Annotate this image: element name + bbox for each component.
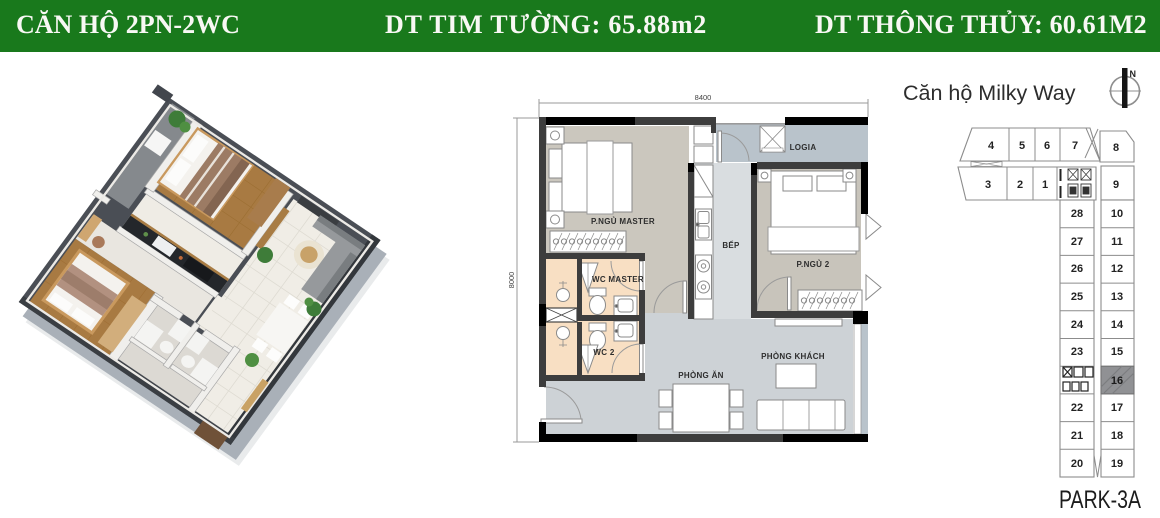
svg-text:24: 24: [1071, 319, 1084, 331]
svg-text:26: 26: [1071, 263, 1083, 275]
svg-text:WC 2: WC 2: [593, 348, 614, 357]
svg-text:27: 27: [1071, 236, 1083, 248]
svg-text:WC MASTER: WC MASTER: [592, 275, 644, 284]
svg-text:N: N: [1130, 69, 1137, 79]
svg-text:Căn hộ Milky Way: Căn hộ Milky Way: [903, 81, 1076, 105]
svg-text:1: 1: [1042, 179, 1048, 191]
svg-text:19: 19: [1111, 458, 1123, 470]
svg-text:9: 9: [1113, 179, 1119, 191]
svg-text:13: 13: [1111, 291, 1123, 303]
svg-text:18: 18: [1111, 430, 1123, 442]
svg-text:25: 25: [1071, 291, 1083, 303]
svg-text:22: 22: [1071, 402, 1083, 414]
svg-text:5: 5: [1019, 140, 1025, 152]
svg-text:PARK-3A: PARK-3A: [1059, 486, 1141, 514]
svg-text:6: 6: [1044, 140, 1050, 152]
svg-text:PHÒNG KHÁCH: PHÒNG KHÁCH: [761, 352, 825, 361]
svg-text:14: 14: [1111, 319, 1124, 331]
svg-text:28: 28: [1071, 208, 1083, 220]
svg-text:3: 3: [985, 179, 991, 191]
svg-text:17: 17: [1111, 402, 1123, 414]
svg-text:4: 4: [988, 140, 995, 152]
svg-text:12: 12: [1111, 263, 1123, 275]
svg-text:P.NGỦ MASTER: P.NGỦ MASTER: [591, 217, 655, 226]
svg-text:16: 16: [1111, 375, 1123, 387]
svg-text:BẾP: BẾP: [722, 240, 740, 250]
svg-text:20: 20: [1071, 458, 1083, 470]
svg-text:21: 21: [1071, 430, 1083, 442]
svg-text:8000: 8000: [507, 272, 516, 289]
svg-text:7: 7: [1072, 140, 1078, 152]
svg-text:15: 15: [1111, 346, 1123, 358]
svg-text:P.NGỦ 2: P.NGỦ 2: [796, 260, 829, 269]
svg-text:23: 23: [1071, 346, 1083, 358]
svg-text:PHÒNG ĂN: PHÒNG ĂN: [678, 371, 724, 380]
svg-text:8: 8: [1113, 142, 1119, 154]
svg-text:LOGIA: LOGIA: [790, 143, 817, 152]
svg-text:8400: 8400: [695, 93, 712, 102]
svg-text:11: 11: [1111, 236, 1123, 248]
svg-text:2: 2: [1017, 179, 1023, 191]
svg-text:10: 10: [1111, 208, 1123, 220]
